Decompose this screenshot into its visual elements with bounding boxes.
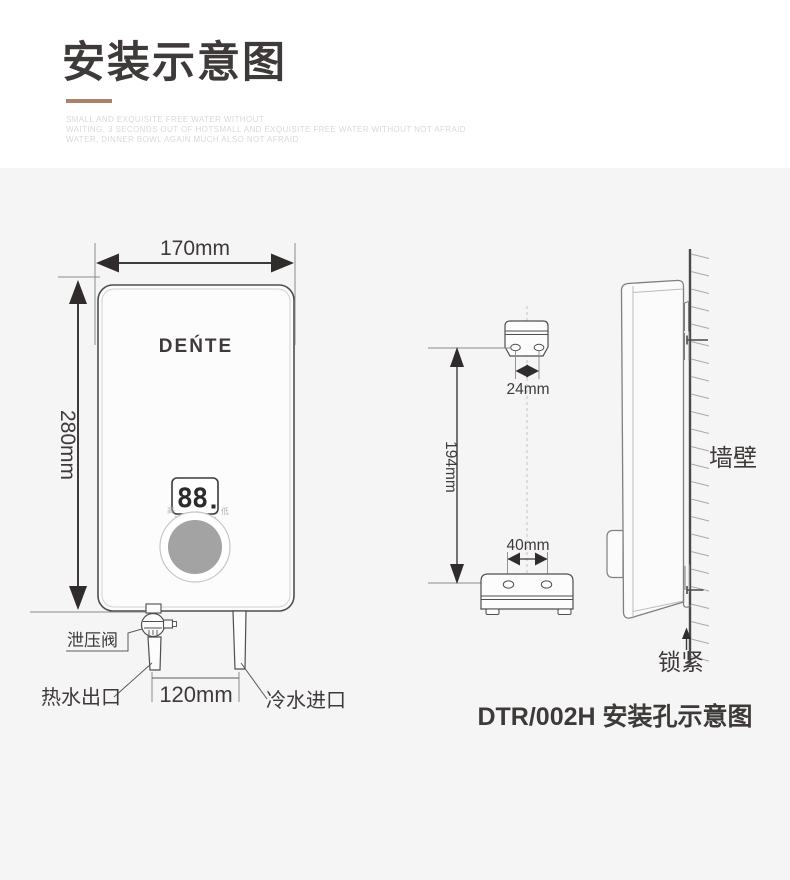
bottom-holes-label: 40mm: [506, 537, 549, 554]
top-holes-label: 24mm: [506, 381, 549, 398]
front-view: DEŃTE 88 高 低 170mm 2: [30, 237, 346, 712]
relief-valve-label: 泄压阀: [67, 631, 118, 650]
side-bracket-top-detail: [685, 302, 690, 362]
arrow-right: [527, 365, 540, 378]
bracket-bottom-hole-right: [541, 581, 551, 588]
mounting-bracket-bottom: [481, 574, 573, 615]
vertical-dimension: 194mm: [428, 347, 510, 584]
pipe-distance-label: 120mm: [159, 682, 232, 707]
diagram-caption: DTR/002H 安装孔示意图: [477, 702, 752, 731]
arrow-up: [69, 280, 87, 304]
hot-water-label: 热水出口: [41, 686, 121, 709]
knob-dial: [168, 520, 222, 574]
arrow-right: [535, 553, 548, 566]
mounting-bracket-top: [505, 321, 548, 356]
arrow-down: [69, 586, 87, 610]
arrow-up: [450, 347, 464, 367]
temperature-display: 88: [172, 478, 218, 514]
cold-water-label: 冷水进口: [266, 689, 346, 712]
valve-neck: [146, 604, 161, 613]
wall-label: 墙壁: [709, 445, 757, 472]
cold-water-leader: [241, 663, 267, 699]
knob-low-label: 低: [221, 506, 229, 516]
width-dim-label: 170mm: [160, 237, 230, 260]
arrow-down: [450, 564, 464, 584]
arrow-left: [516, 365, 529, 378]
top-holes-dimension: 24mm: [506, 351, 549, 398]
valve-outlet: [164, 620, 173, 628]
bracket-foot-right: [558, 609, 571, 615]
cold-water-pipe: [233, 611, 246, 669]
knob-high-label: 高: [167, 505, 175, 515]
installation-diagram-svg: DEŃTE 88 高 低 170mm 2: [0, 0, 790, 880]
knob-side-profile: [607, 531, 623, 578]
display-dot: [212, 505, 216, 509]
arrow-left: [508, 553, 521, 566]
valve-outlet-tip: [173, 622, 177, 627]
lock-label: 锁紧: [658, 649, 704, 675]
display-digits: 88: [177, 483, 208, 514]
mounting-hole-view: 24mm 194mm 40mm: [428, 306, 573, 615]
height-dim-label: 280mm: [56, 410, 79, 480]
side-view: 锁紧 墙壁: [607, 249, 757, 675]
brand-logo: DEŃTE: [159, 335, 233, 357]
pipe-distance-dimension: 120mm: [152, 672, 239, 707]
vertical-dim-label: 194mm: [442, 441, 459, 493]
vertical-extension-lines: [428, 348, 510, 583]
heater-side-profile: [621, 280, 683, 618]
bracket-bottom-hole-left: [503, 581, 513, 588]
bracket-top-hole-right: [534, 344, 544, 350]
bracket-bottom-outline: [481, 574, 573, 609]
arrow-left: [96, 254, 119, 273]
arrow-right: [271, 254, 294, 273]
bottom-holes-dimension: 40mm: [506, 537, 549, 579]
bracket-foot-left: [486, 609, 499, 615]
wall-hatching: [691, 254, 709, 661]
bracket-top-hole-left: [511, 344, 521, 350]
